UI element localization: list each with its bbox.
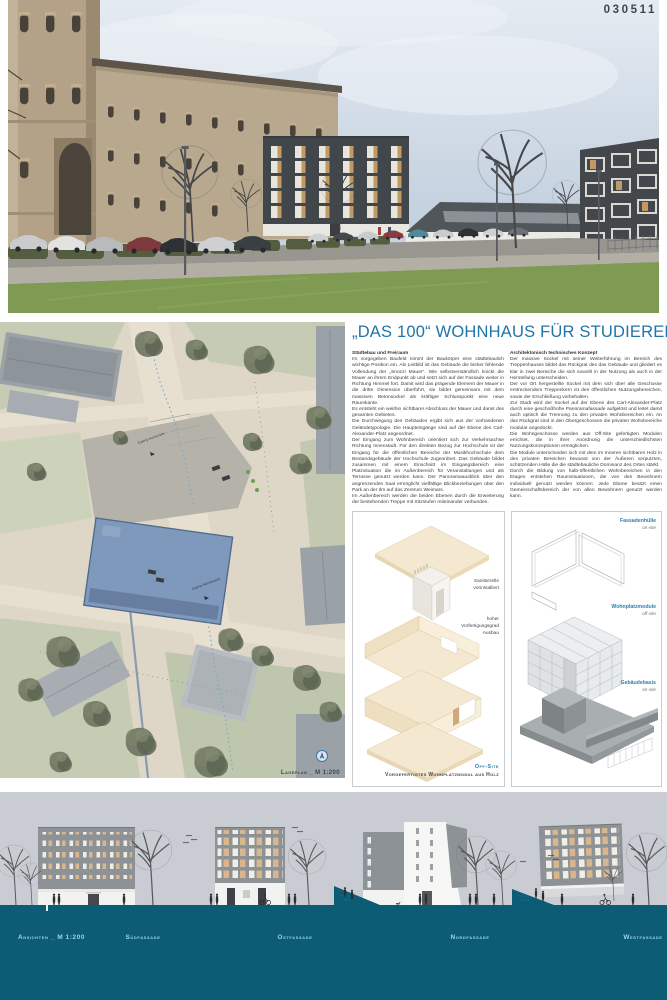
body-paragraph: Der vor Ort hergestellte Sockel mit dem …: [510, 382, 662, 401]
module-caption: Vorgefertigtes Wohnplatzmodul aus Holz: [385, 772, 499, 778]
prefab-label-line2: Vorfertigungsgrad: [461, 623, 499, 629]
facade-label-west: Westfassade: [623, 934, 662, 941]
step-label: Fassadenhülle: [620, 518, 656, 524]
building-base: [520, 687, 658, 768]
body-paragraph: Zur Stadt wird der Sockel auf der Ebene …: [510, 401, 662, 432]
body-paragraph: Die Module unterscheiden sich mit dem im…: [510, 451, 662, 470]
step-mode: off-site: [642, 611, 656, 616]
site-photomontage: [8, 0, 659, 313]
body-paragraph: Im Außenbereich werden die beiden Ebenen…: [352, 494, 504, 506]
body-paragraph: Der Eingang zum Wohnbereich orientiert s…: [352, 438, 504, 494]
sanitary-label-line1: Sanitärzelle: [474, 578, 499, 584]
west-fassade: [539, 824, 624, 898]
nord-fassade: [363, 822, 467, 905]
portal-arch: [59, 143, 91, 235]
sued-fassade: [38, 827, 135, 905]
body-paragraph: Es entsteht ein weithin sichtbarer Absch…: [352, 407, 504, 419]
ost-fassade: [215, 827, 285, 905]
module-exploded-axon: Sanitärzelle vorinstalliert hoher Vorfer…: [353, 512, 504, 786]
sanitary-label-line2: vorinstalliert: [473, 585, 499, 591]
elevations-scale-label: Ansichten _ M 1:200: [18, 934, 85, 941]
module-diagram-box: Sanitärzelle vorinstalliert hoher Vorfer…: [352, 511, 505, 787]
step-label: Wohnplatzmodule: [611, 604, 656, 610]
body-paragraph: Die Durchwegung des Gebäudes ergibt sich…: [352, 419, 504, 438]
step-mode: on-site: [642, 525, 656, 530]
step-mode: on-site: [642, 687, 656, 692]
prefab-label-line1: hoher: [487, 616, 500, 622]
body-paragraph: Der massive Sockel mit seiner Weiterführ…: [510, 357, 662, 382]
body-paragraph: Durch die Bildung von halb-öffentlichen …: [510, 469, 662, 500]
board-code: 030511: [604, 4, 657, 16]
north-arrow-icon: [317, 751, 328, 762]
offsite-caption: Off-Site: [475, 764, 499, 770]
facade-label-ost: Ostfassade: [278, 934, 313, 941]
page-title: „DAS 100“ WOHNHAUS FÜR STUDIERENDE: [352, 323, 664, 342]
siteplan-caption: Lageplan _ M 1:200: [281, 770, 340, 776]
facade-label-nord: Nordfassade: [451, 934, 490, 941]
text-column-urbanism: Städtebau und Freiraum Im vorgegeben Bau…: [352, 351, 504, 506]
facade-shell-wireframe: [532, 530, 624, 610]
assembly-axon: Fassadenhülle on-site Wohnplatzmodule of…: [512, 512, 661, 786]
pedestrian: [378, 227, 381, 235]
prefab-label-line3: Ausbau: [483, 630, 500, 636]
elevations-strip: Ansichten _ M 1:200 Südfassade Ostfassad…: [0, 792, 667, 1000]
new-building-plan: [84, 518, 233, 624]
body-paragraph: Im vorgegeben Baufeld nimmt der Baukörpe…: [352, 357, 504, 407]
facade-label-sued: Südfassade: [126, 934, 161, 941]
competition-board: 030511: [0, 0, 667, 1000]
site-plan: Zugang Hochschule Zugang Wohnbereich Lag…: [0, 322, 345, 778]
text-column-concept: Architektonisch technisches Konzept Der …: [510, 351, 662, 500]
assembly-diagram-box: Fassadenhülle on-site Wohnplatzmodule of…: [511, 511, 662, 787]
body-paragraph: Die Wohngeschosse werden aus Off-Site ge…: [510, 432, 662, 451]
step-label: Gebäudebasis: [621, 680, 657, 686]
